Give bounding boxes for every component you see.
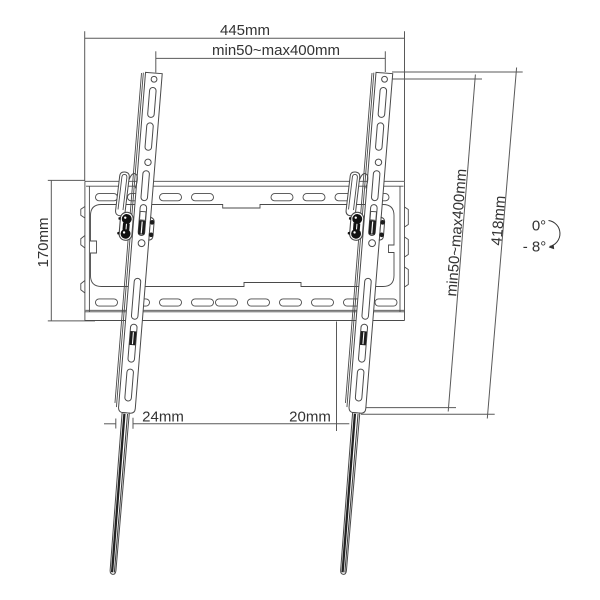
svg-text:min50~max400mm: min50~max400mm (443, 168, 470, 297)
svg-text:445mm: 445mm (220, 22, 270, 39)
svg-text:0°: 0° (532, 217, 546, 234)
svg-text:24mm: 24mm (142, 408, 184, 425)
svg-text:- 8°: - 8° (523, 239, 547, 256)
svg-text:418mm: 418mm (488, 195, 509, 246)
svg-text:170mm: 170mm (35, 217, 52, 267)
svg-text:20mm: 20mm (289, 408, 331, 425)
svg-text:min50~max400mm: min50~max400mm (212, 42, 340, 59)
